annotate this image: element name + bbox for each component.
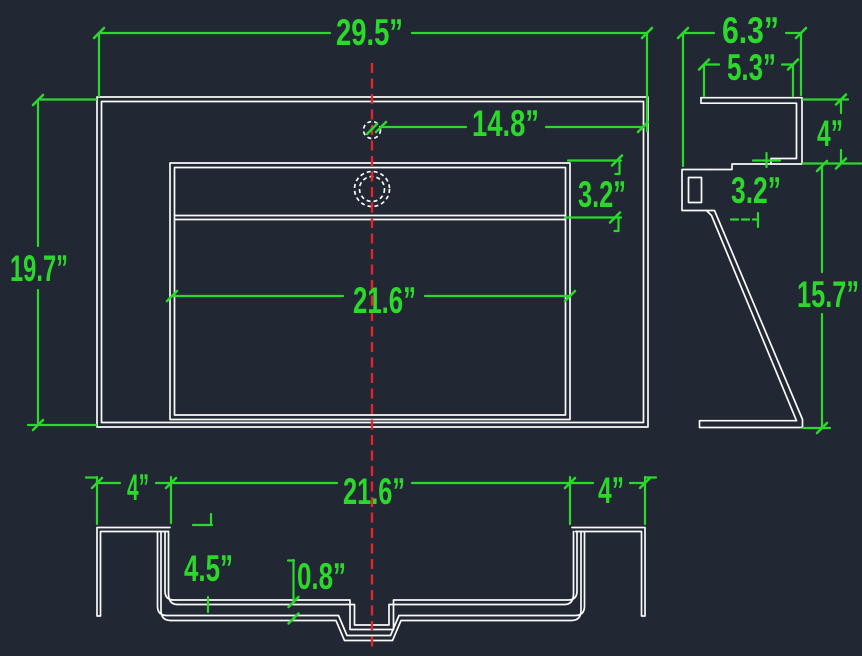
dim-label-side-ledge: 3.2”: [731, 170, 781, 211]
dim-label-apron-height: 4.5”: [184, 548, 233, 589]
dim-label-lip: 0.8”: [297, 556, 346, 597]
front-left-leg: [97, 528, 170, 617]
front-left-inner-walls: [158, 532, 178, 621]
dim-label-backsplash-height: 4”: [817, 113, 843, 154]
dim-label-side-height: 15.7”: [797, 274, 859, 315]
dimension-tick-marks: [33, 28, 846, 624]
front-right-leg: [572, 528, 645, 617]
dim-label-front-basin: 21.6”: [343, 471, 405, 512]
side-view: [682, 98, 803, 428]
plan-ledge-line: [175, 216, 566, 220]
drawing-canvas: 29.5” 14.8” 3.2” 21.6” 19.7” 6.3” 5.3” 4…: [0, 0, 862, 656]
dimension-lines: [28, 28, 861, 624]
sink-dimension-drawing: 29.5” 14.8” 3.2” 21.6” 19.7” 6.3” 5.3” 4…: [0, 0, 862, 656]
dim-label-faucet-to-edge: 14.8”: [472, 103, 539, 144]
dim-label-plan-ledge: 3.2”: [578, 174, 626, 215]
dim-label-plan-width: 29.5”: [336, 12, 403, 53]
side-foot: [700, 421, 803, 428]
dim-label-side-depth-inner: 5.3”: [727, 47, 776, 88]
dim-label-side-depth-top: 6.3”: [722, 10, 779, 51]
side-front-rim-hollow: [689, 178, 702, 203]
dim-label-plan-basin: 21.6”: [353, 280, 416, 321]
dim-0-8-lines: [288, 560, 294, 602]
dim-label-plan-depth: 19.7”: [10, 248, 68, 289]
side-deck-inner: [701, 98, 797, 164]
dim-label-front-left-leg: 4”: [127, 467, 149, 508]
dim-label-front-right-leg: 4”: [598, 470, 624, 511]
